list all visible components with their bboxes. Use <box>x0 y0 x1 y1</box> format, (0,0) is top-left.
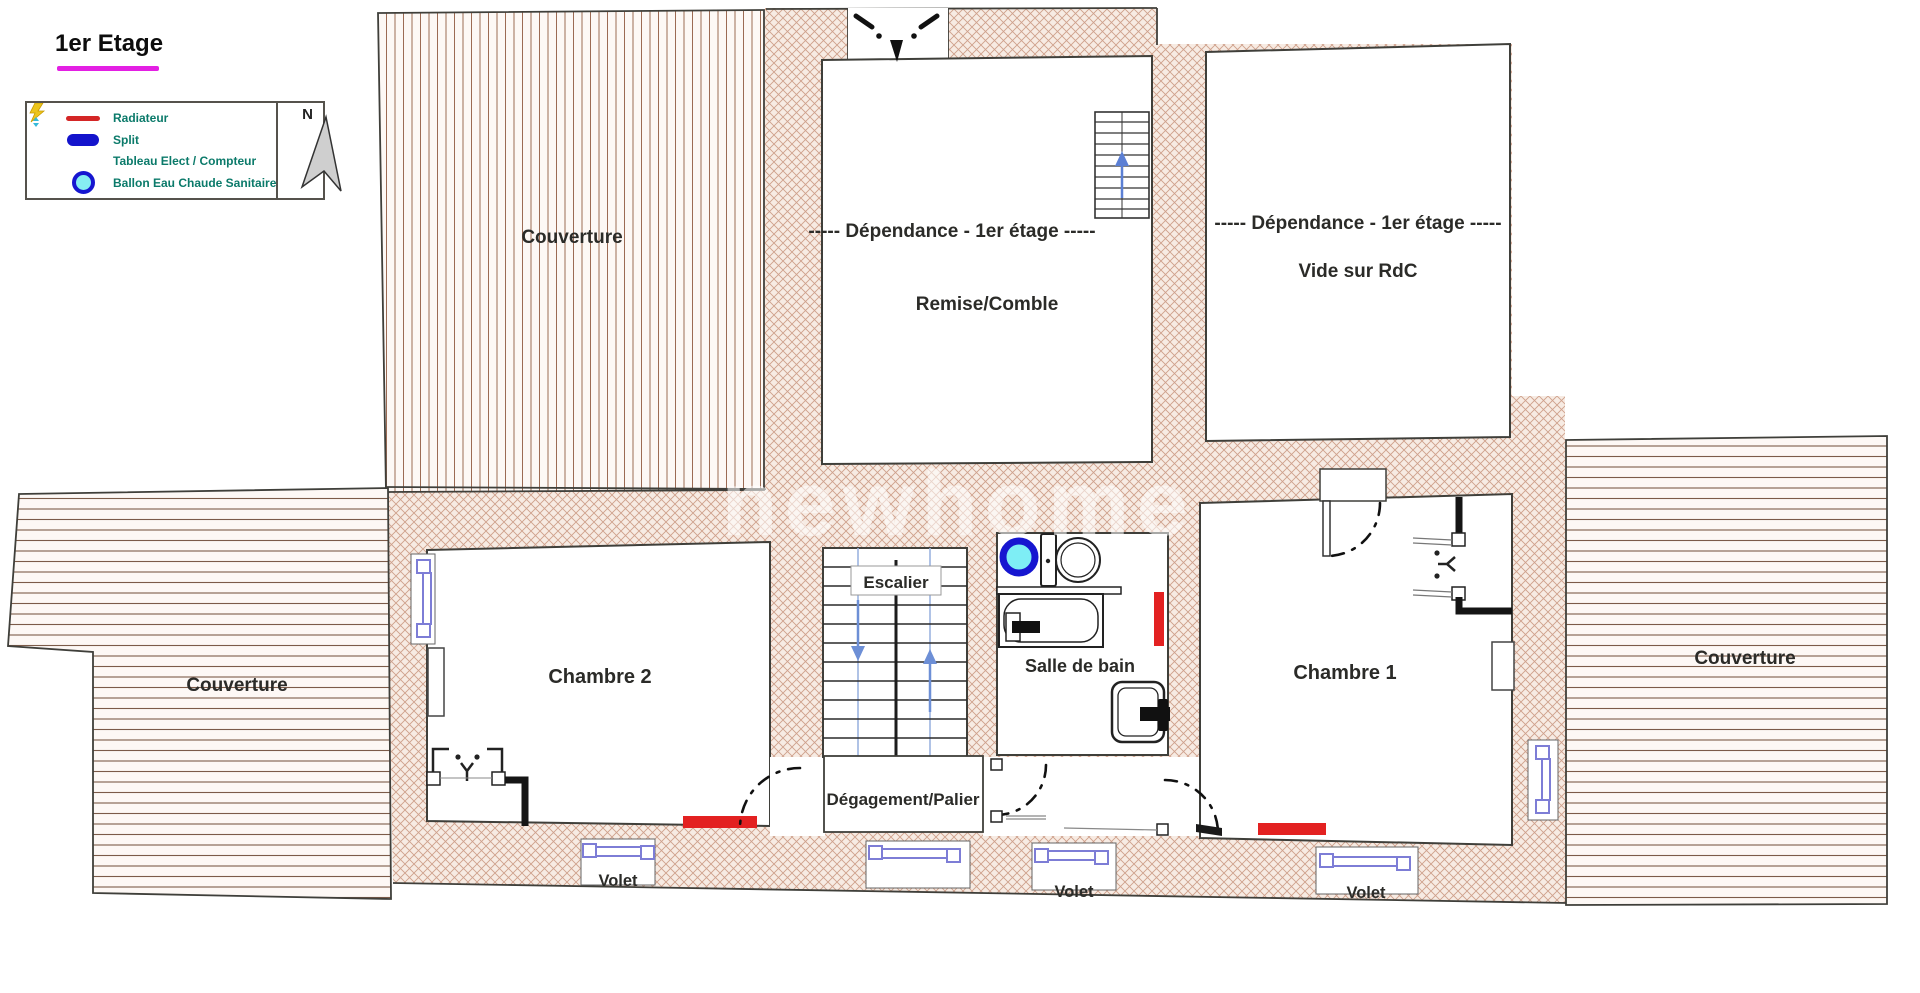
label-chambre1: Chambre 1 <box>1293 662 1396 684</box>
label-couverture-right: Couverture <box>1694 648 1795 669</box>
dormer-box <box>1320 469 1386 501</box>
legend-label: Tableau Elect / Compteur <box>113 154 256 168</box>
radiator-icon-chambre1 <box>1258 823 1326 835</box>
window-icon-chambre2-left <box>411 554 435 644</box>
legend-box: Radiateur Split Tableau Elect / Compteur <box>25 101 325 200</box>
legend-row-ballon: Ballon Eau Chaude Sanitaire <box>65 173 276 193</box>
watermark: newhome <box>721 453 1194 555</box>
label-volet-3: Volet <box>1346 884 1386 902</box>
label-chambre2: Chambre 2 <box>548 666 651 688</box>
label-couverture-left: Couverture <box>186 675 287 696</box>
door-hinge-3 <box>1157 824 1168 835</box>
label-salle-de-bain: Salle de bain <box>1025 656 1135 676</box>
remise-stairs <box>1095 112 1149 218</box>
label-escalier: Escalier <box>863 573 929 592</box>
page-title: 1er Etage <box>55 30 163 58</box>
north-arrow-icon <box>278 103 364 198</box>
legend-label: Split <box>113 133 139 147</box>
label-volet-2: Volet <box>1054 883 1094 901</box>
split-pill-icon <box>65 134 101 146</box>
label-volet-1: Volet <box>598 872 638 890</box>
legend-row-radiateur: Radiateur <box>65 108 276 128</box>
sink-icon <box>1112 682 1170 742</box>
floor-plan-page: Couverture ----- Dépendance - 1er étage … <box>0 0 1920 993</box>
legend-label: Ballon Eau Chaude Sanitaire <box>113 176 276 190</box>
window-icon-palier <box>866 841 970 888</box>
label-vide-title: ----- Dépendance - 1er étage ----- <box>1214 213 1501 234</box>
compass-panel: N <box>276 103 323 198</box>
window-icon-chambre1-right <box>1528 740 1558 820</box>
label-vide-name: Vide sur RdC <box>1299 261 1418 282</box>
roof-couverture-top <box>378 10 764 492</box>
door-leaf-chambre1-top <box>1323 501 1330 556</box>
door-hinge-2 <box>991 811 1002 822</box>
radiator-line-icon <box>65 116 101 121</box>
legend-items: Radiateur Split Tableau Elect / Compteur <box>27 103 276 198</box>
label-remise-title: ----- Dépendance - 1er étage ----- <box>808 221 1095 242</box>
roof-couverture-right <box>1566 436 1887 905</box>
legend-row-split: Split <box>65 130 276 150</box>
radiator-icon-chambre2 <box>683 816 757 828</box>
legend-row-tableau: Tableau Elect / Compteur <box>65 151 276 171</box>
label-couverture-top: Couverture <box>521 227 622 248</box>
room-vide-sur-rdc <box>1206 44 1510 441</box>
title-underline <box>57 66 159 71</box>
legend-label: Radiateur <box>113 111 168 125</box>
radiator-icon-bathroom <box>1154 592 1164 646</box>
label-remise-name: Remise/Comble <box>916 294 1059 315</box>
water-heater-circle-icon <box>65 171 101 194</box>
chimney-niche <box>428 648 444 716</box>
bathroom-shelf <box>997 587 1121 594</box>
bathtub-icon <box>999 594 1103 647</box>
door-hinge-1 <box>991 759 1002 770</box>
label-degagement: Dégagement/Palier <box>826 790 979 809</box>
wall-niche <box>1492 642 1514 690</box>
